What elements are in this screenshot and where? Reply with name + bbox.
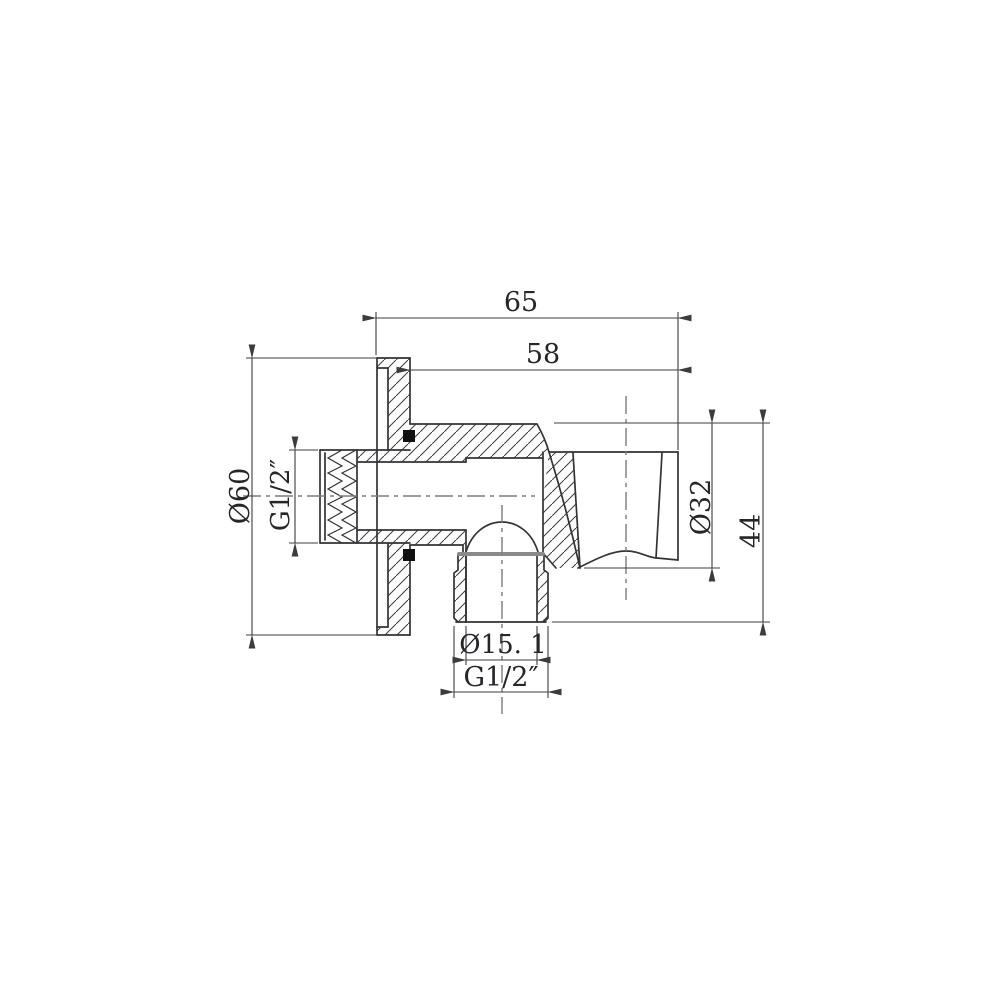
technical-drawing: 65 58 Ø60 G1/2″ Ø32 44 Ø15. 1 G1/2″ <box>0 0 1000 1000</box>
label-inlet-thread: G1/2″ <box>266 459 296 532</box>
bottom-outlet-port <box>454 522 548 622</box>
seal-top <box>403 430 415 442</box>
drawing-canvas: 65 58 Ø60 G1/2″ Ø32 44 Ø15. 1 G1/2″ <box>0 0 1000 1000</box>
label-flange-diameter: Ø60 <box>225 468 256 525</box>
label-outlet-height: 44 <box>736 514 767 548</box>
seal-bottom <box>403 549 415 561</box>
label-outlet-bore: Ø15. 1 <box>459 630 546 660</box>
label-outlet-thread: G1/2″ <box>463 662 538 693</box>
label-holder-diameter: Ø32 <box>686 479 717 536</box>
label-body-width: 58 <box>526 339 560 370</box>
dimension-labels: 65 58 Ø60 G1/2″ Ø32 44 Ø15. 1 G1/2″ <box>225 287 767 693</box>
label-overall-width: 65 <box>504 287 538 318</box>
